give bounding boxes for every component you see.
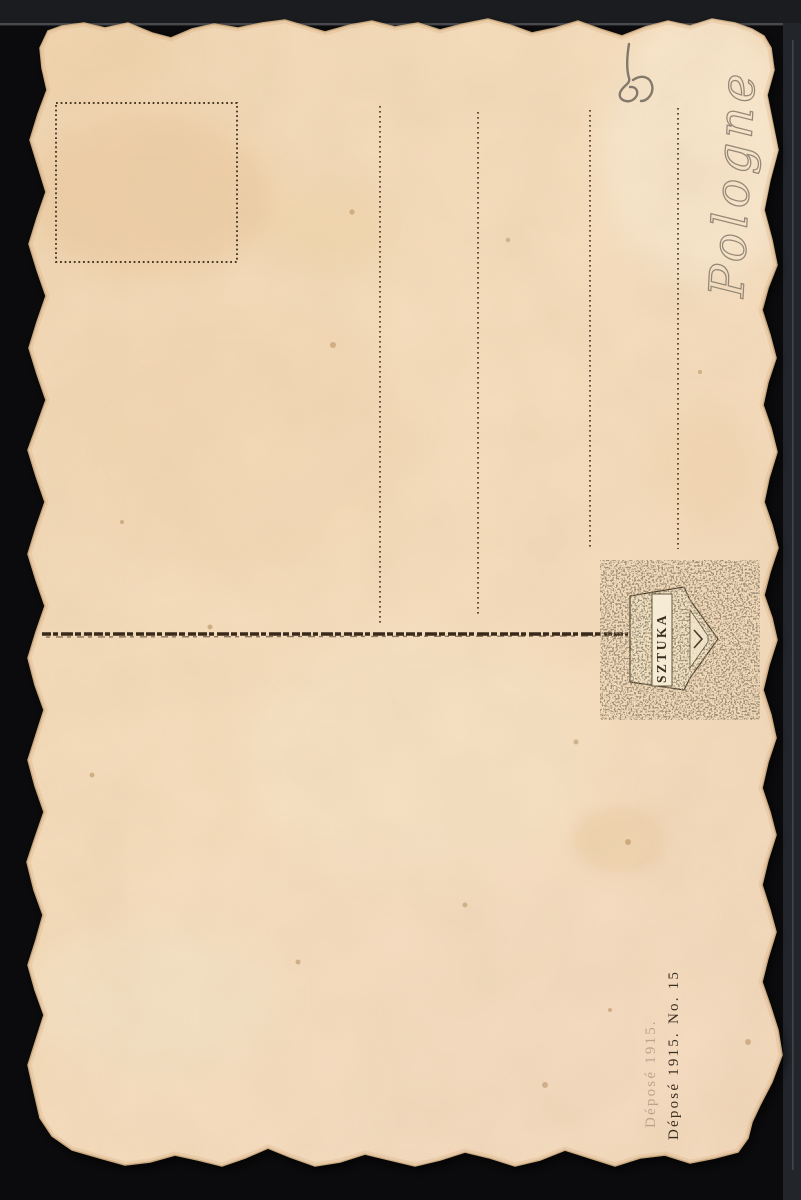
postcard: SZTUKA Déposé 1915. Déposé 1915. No. 15 … (2, 3, 795, 1190)
scanner-right-highlight-line (792, 40, 794, 1170)
postcard-scan: SZTUKA Déposé 1915. Déposé 1915. No. 15 … (0, 0, 801, 1200)
deposit-ghost-text: Déposé 1915. (643, 1019, 659, 1128)
deposit-text: Déposé 1915. (666, 1031, 682, 1140)
publisher-name-text: SZTUKA (654, 613, 669, 683)
scanned-postcard-stage: SZTUKA Déposé 1915. Déposé 1915. No. 15 … (0, 0, 801, 1200)
scanner-top-band (0, 0, 801, 23)
handwriting-place-text: Pologne (699, 67, 767, 299)
number-text: No. 15 (666, 970, 682, 1024)
